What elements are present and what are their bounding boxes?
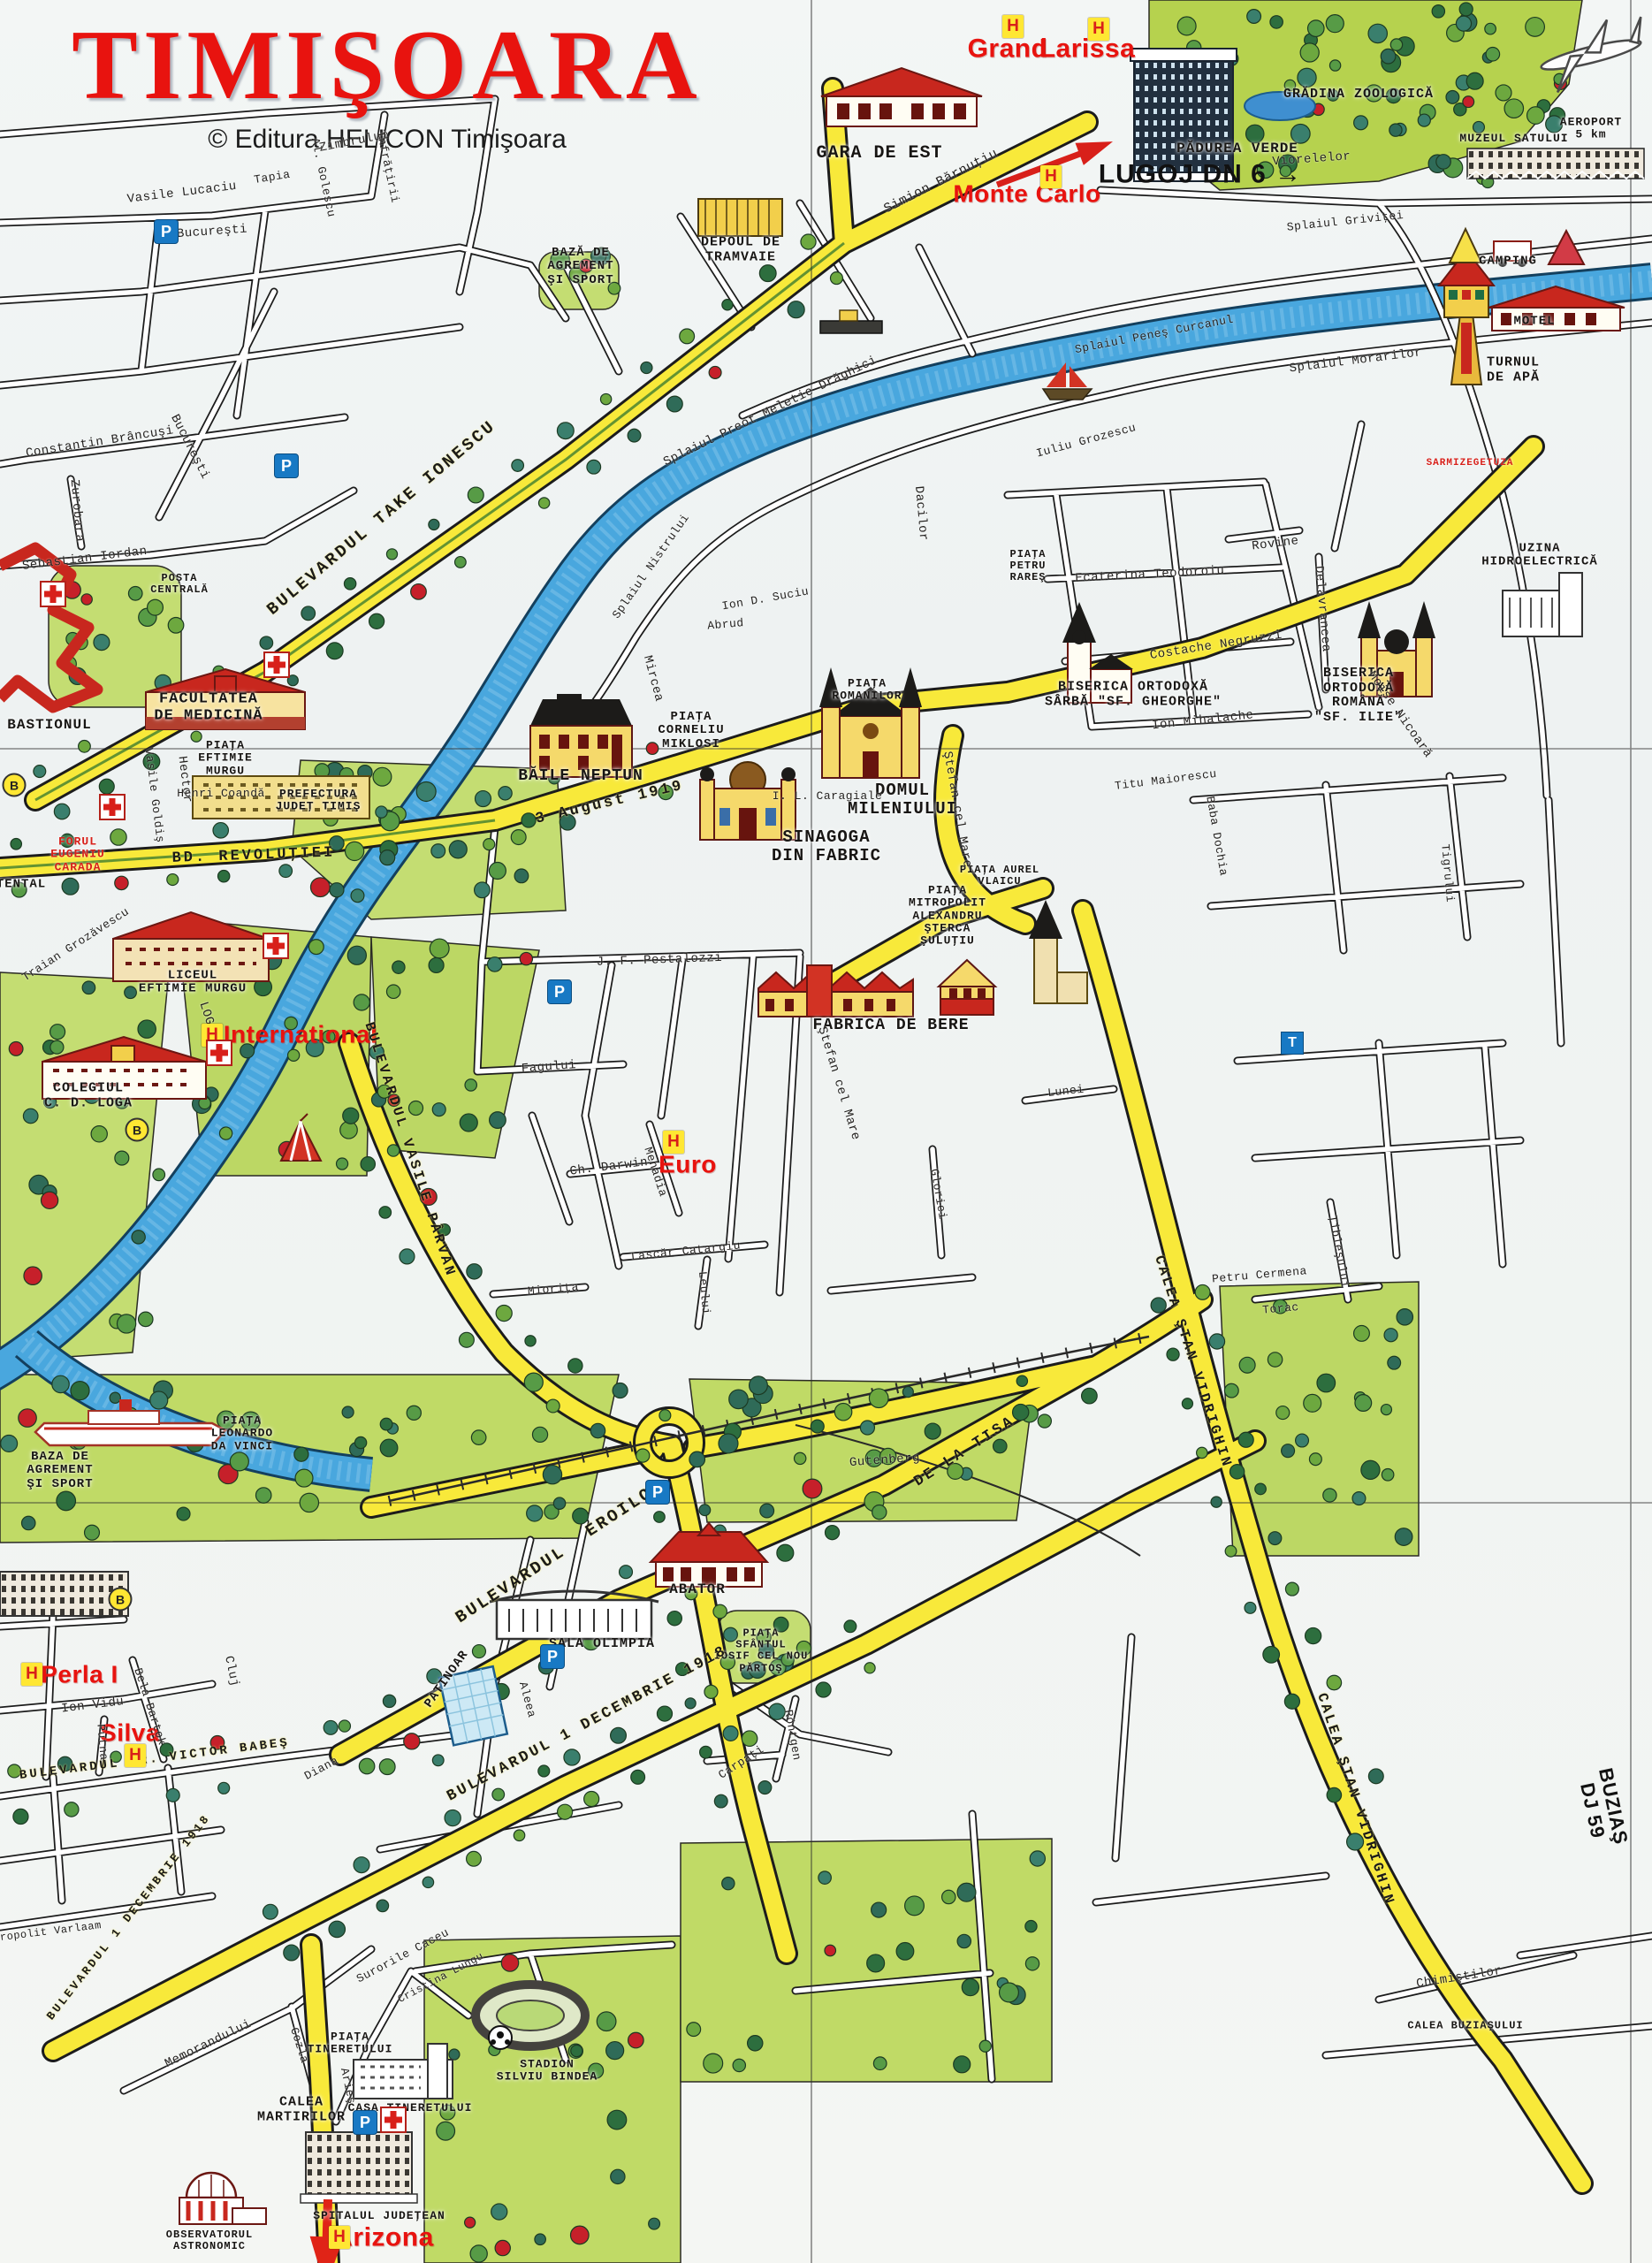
st-miorita: Mioriţa xyxy=(527,1281,579,1298)
st-diana: Diana xyxy=(302,1755,340,1783)
st-henri-coanda: Henri Coandă xyxy=(177,788,265,800)
st-carpati: Carpaţi xyxy=(717,1743,767,1782)
piata-corneliu-miklosi: PIAŢA CORNELIU MIKLOSI xyxy=(658,711,724,751)
st-delavrancea: Delavrancea xyxy=(1311,566,1332,653)
st-gutenberg: Gutenberg xyxy=(849,1452,920,1471)
parking-icon-6: P xyxy=(645,1480,670,1505)
domul-mileniului: DOMUL MILENIULUI xyxy=(848,781,957,819)
st-traian-grozavescu: Traian Grozăvescu xyxy=(20,906,132,985)
aeroport: AEROPORT 5 km xyxy=(1560,117,1622,142)
st-al-golescu: Al. Golescu xyxy=(308,137,338,218)
parking-icon-5: P xyxy=(353,2110,377,2135)
sarmizegetuza: SARMIZEGETUZA xyxy=(1427,458,1514,469)
st-bd-revolutiei: BD. REVOLUŢIEI xyxy=(171,845,335,867)
st-stan-vidrighin-2: CALEA ŞTAN VIDRIGHIN xyxy=(1313,1691,1397,1908)
st-victor-babes: BULEVARDUL DR. VICTOR BABEŞ xyxy=(19,1737,290,1784)
st-sebastian-iordan: Sebastian Iordan xyxy=(21,545,148,575)
st-aries: Arieş xyxy=(338,2067,358,2106)
st-baba-dochia: Baba Dochia xyxy=(1203,796,1229,877)
calea-buziasului: CALEA BUZIAŞULUI xyxy=(1407,2020,1523,2031)
red-cross-icon-2 xyxy=(263,651,290,678)
st-mircea: Mircea xyxy=(640,654,666,704)
piata-eftimie-murgu: PIAŢA EFTIMIE MURGU xyxy=(198,740,253,778)
st-tapia: Tapia xyxy=(253,169,291,187)
spitalul-judetean: SPITALUL JUDEŢEAN xyxy=(313,2210,445,2222)
st-surorile-caceu: Surorile Caceu xyxy=(354,1926,451,1985)
h-badge-euro: H xyxy=(663,1131,684,1154)
st-iuliu-grozescu: Iuliu Grozescu xyxy=(1035,422,1138,461)
liceul-eftimie-murgu: LICEUL EFTIMIE MURGU xyxy=(139,970,247,997)
turnul-de-apa: TURNUL DE APĂ xyxy=(1487,356,1540,385)
st-eroilor-1: BULEVARDUL xyxy=(453,1543,569,1627)
motel: MOTEL xyxy=(1513,315,1555,328)
padurea-verde: PĂDUREA VERDE xyxy=(1176,141,1298,157)
baza-agrement-nord: BAZĂ DE AGREMENT ŞI SPORT xyxy=(547,247,613,287)
colegiul-cd-loga: COLEGIUL C. D. LOGA xyxy=(44,1082,133,1111)
st-ecaterina-teodoroiu: Ecaterina Teodoroiu xyxy=(1075,565,1225,586)
st-torac: Torac xyxy=(1262,1301,1300,1317)
st-ion-d-suciu: Ion D. Suciu xyxy=(721,585,811,613)
st-loga: LOGA xyxy=(195,1001,218,1035)
piata-mitropolit: PIAŢA MITROPOLIT ALEXANDRU ŞTERCA ŞULUŢI… xyxy=(909,884,986,947)
st-cluj: Cluj xyxy=(221,1655,240,1688)
st-3-august-1919: 3 August 1919 xyxy=(534,779,685,829)
baza-agrement-sud: BAZA DE AGREMENT ŞI SPORT xyxy=(27,1451,93,1491)
patinoar: PATINOAR xyxy=(423,1649,472,1711)
st-infratirii: Înfrăţirii xyxy=(373,130,400,204)
labels-layer: GrandLarissaMonte CarloInternationalEuro… xyxy=(0,0,1652,2263)
hotel-monte-carlo: Monte Carlo xyxy=(953,181,1100,209)
st-moise-nicoara: Moise Nicoară xyxy=(1365,669,1435,761)
st-abrud: Abrud xyxy=(707,617,745,633)
st-pestalozzi: J. F. Pestalozzi xyxy=(597,952,723,970)
posta-centrala: POŞTA CENTRALĂ xyxy=(150,573,209,596)
st-caragiale: I. L. Caragiale xyxy=(773,790,883,803)
st-brancusi: Constantin Brâncuşi xyxy=(25,424,174,461)
st-vasile-lucaciu: Vasile Lucaciu xyxy=(126,180,238,207)
st-titu-maiorescu: Titu Maiorescu xyxy=(1114,768,1217,793)
red-cross-icon-6 xyxy=(380,2107,407,2133)
st-take-ionescu: BULEVARDUL TAKE IONESCU xyxy=(263,417,499,620)
st-mehadia: Mehadia xyxy=(641,1146,669,1199)
baile-neptun: BĂILE NEPTUN xyxy=(518,768,643,786)
bus-stop-icon-3: B xyxy=(109,1588,133,1612)
st-dacilor: Dacilor xyxy=(911,485,930,541)
st-cozla: Cozla xyxy=(287,2026,310,2065)
st-1-decembrie-b: BULEVARDUL 1 DECEMBRIE 1918 xyxy=(45,1812,214,2023)
st-vasile-goldis: Vasile Goldiş xyxy=(141,748,165,844)
calea-martirilor: CALEA MARTIRILOR xyxy=(257,2096,346,2125)
st-stefan-cel-mare-1: Ştefan cel Mare xyxy=(940,751,973,869)
sinagoga-din-fabric: SINAGOGA DIN FABRIC xyxy=(772,828,881,865)
bus-stop-icon-1: B xyxy=(126,1118,149,1142)
piata-romanilor: PIAŢA ROMANILOR xyxy=(832,678,902,704)
parking-icon-4: P xyxy=(540,1644,565,1669)
muzeul-satului: MUZEUL SATULUI xyxy=(1459,133,1568,145)
abator: ABATOR xyxy=(669,1582,726,1598)
hotel-euro: Euro xyxy=(659,1152,717,1179)
st-ion-mihalache: Ion Mihalache xyxy=(1152,709,1255,733)
hotel-arizona: Arizona xyxy=(333,2223,434,2252)
facultatea-de-medicina: FACULTATEA DE MEDICINĂ xyxy=(154,691,263,724)
st-bucuresti-2: Bucureşti xyxy=(176,224,247,242)
hotel-perla: Perla I xyxy=(41,1662,118,1689)
st-vasile-parvan: BULEVARDUL VASILE PÂRVAN xyxy=(361,1020,458,1279)
bus-stop-icon-2: B xyxy=(3,773,27,797)
hotel-larissa: Larissa xyxy=(1039,34,1136,64)
fabrica-de-bere: FABRICA DE BERE xyxy=(812,1017,969,1035)
st-memorandului: Memorandului xyxy=(164,2018,255,2072)
st-mitropolit-varlaam: Mitropolit Varlaam xyxy=(0,1920,103,1947)
st-leului: Leului xyxy=(696,1271,712,1316)
st-splaiul-grivitei: Splaiul Griviţei xyxy=(1286,210,1405,234)
st-1-decembrie: BULEVARDUL 1 DECEMBRIE 1918 xyxy=(445,1643,731,1806)
gradina-zoologica: GRĂDINA ZOOLOGICĂ xyxy=(1283,88,1434,103)
st-hector: Hector xyxy=(174,756,194,804)
piata-aurel-vlaicu: PIAŢA AUREL VLAICU xyxy=(960,865,1039,888)
st-zurobara: Zurobara xyxy=(66,479,86,543)
st-cristina-lungu: Cristina Lungu xyxy=(396,1951,485,2006)
st-tiblesului: Ţibleşului xyxy=(1326,1215,1351,1289)
st-splaiul-nistrului: Splaiul Nistrului xyxy=(611,512,693,621)
st-viorelelor: Viorelelor xyxy=(1272,150,1351,170)
st-putna: Putna xyxy=(94,1724,110,1762)
st-simion-barnutiu: Simion Bărnuţiu xyxy=(882,147,1001,217)
h-badge-monte-carlo: H xyxy=(1040,165,1062,188)
red-cross-icon-4 xyxy=(206,1040,232,1066)
parking-icon-3: P xyxy=(547,979,572,1004)
st-lunei: Lunei xyxy=(1047,1084,1085,1101)
sala-olimpia: SALA OLIMPIA xyxy=(549,1637,655,1652)
prefectura: PREFECTURA JUDEŢ TIMIŞ xyxy=(276,789,362,814)
piata-leonardo: PIAŢA LEONARDO DA VINCI xyxy=(211,1415,273,1453)
piata-sf-iosif: PIAŢA SFÂNTUL IOSIF CEL NOU PĂRTOŞ xyxy=(714,1628,809,1675)
h-badge-international: H xyxy=(202,1024,223,1047)
piata-tineretului: PIAŢA TINERETULUI xyxy=(308,2031,393,2057)
biserica-sarba: BISERICA ORTODOXĂ SÂRBĂ "SF. GHEORGHE" xyxy=(1045,681,1222,710)
map-canvas: TIMIŞOARA © Editura HELICON Timişoara Gr… xyxy=(0,0,1652,2263)
st-eroilor-2: EROILOR xyxy=(582,1477,667,1541)
st-darwin: Ch. Darwin xyxy=(569,1156,649,1179)
parking-icon-1: P xyxy=(154,219,179,244)
st-petru-cermena: Petru Cermena xyxy=(1212,1265,1308,1286)
stadion-silviu-bindea: STADION SILVIU BINDEA xyxy=(497,2059,598,2084)
buzias-dj59: BUZIAŞ DJ 59 xyxy=(1573,1766,1632,1851)
hotel-silva: Silva xyxy=(100,1720,160,1748)
st-rontgen: Röntgen xyxy=(781,1709,803,1762)
tram-icon-1: T xyxy=(1281,1032,1304,1055)
red-cross-icon-1 xyxy=(40,581,66,607)
forul-eugeniu-carada: FORUL EUGENIU CARADA xyxy=(50,836,105,874)
gara-de-est: GARA DE EST xyxy=(816,144,942,164)
red-cross-icon-3 xyxy=(99,794,126,820)
st-splaiul-penes: Splaiul Peneş Curcanul xyxy=(1074,314,1235,357)
h-badge-silva: H xyxy=(125,1744,146,1767)
h-badge-grand: H xyxy=(1002,15,1024,38)
hotel-grand: Grand xyxy=(968,34,1048,64)
st-stefan-cel-mare-2: Ştefan cel Mare xyxy=(814,1025,862,1142)
casa-tineretului: CASA TINERETULUI xyxy=(348,2102,473,2114)
red-cross-icon-5 xyxy=(263,933,289,959)
bastionul: BASTIONUL xyxy=(7,718,91,734)
st-bucuresti: Bucureşti xyxy=(167,413,211,482)
parking-icon-2: P xyxy=(274,453,299,478)
st-eroilor-3: DE LA TISA xyxy=(912,1413,1019,1491)
observatorul-astronomic: OBSERVATORUL ASTRONOMIC xyxy=(166,2229,253,2252)
st-rovine: Rovine xyxy=(1252,535,1300,554)
st-zimbrului: Zimbrului xyxy=(318,129,391,156)
h-badge-arizona: H xyxy=(329,2226,350,2249)
hotel-international: International xyxy=(224,1022,378,1049)
tental: TENTAL xyxy=(0,878,46,891)
st-chimistilor: Chimiştilor xyxy=(1415,1965,1503,1993)
uzina-hidroelectrica: UZINA HIDROELECTRICĂ xyxy=(1481,543,1598,570)
piata-petru-rares: PIAŢA PETRU RAREŞ xyxy=(1009,549,1046,584)
st-gloriei: Gloriei xyxy=(927,1168,948,1221)
st-lascar-catargiu: Lascăr Catargiu xyxy=(630,1239,741,1263)
st-fagului: Fagului xyxy=(521,1059,576,1077)
st-splaiul-morarilor: Splaiul Morarilor xyxy=(1289,347,1423,377)
h-badge-larissa: H xyxy=(1088,18,1109,41)
st-aleea: Aleea xyxy=(516,1680,538,1719)
st-stan-vidrighin-1: CALEA ŞTAN VIDRIGHIN xyxy=(1151,1253,1235,1470)
st-tigrului: Tigrului xyxy=(1438,843,1456,903)
depoul-de-tramvaie: DEPOUL DE TRAMVAIE xyxy=(701,236,780,265)
camping: CAMPING xyxy=(1479,255,1537,268)
st-negruzzi: Costache Negruzzi xyxy=(1149,629,1283,664)
h-badge-perla: H xyxy=(21,1663,42,1686)
lugoj-dn6: LUGOJ DN 6 → xyxy=(1099,160,1302,189)
st-ion-vidu: Ion Vidu xyxy=(61,1695,126,1717)
st-bela-bartok: Bela Bartok xyxy=(131,1666,168,1747)
biserica-romana: BISERICA ORTODOXĂ ROMÂNĂ "SF. ILIE" xyxy=(1314,667,1403,725)
st-splaiul-meletie: Splaiul Preot Meletie Drăghici xyxy=(662,354,880,470)
